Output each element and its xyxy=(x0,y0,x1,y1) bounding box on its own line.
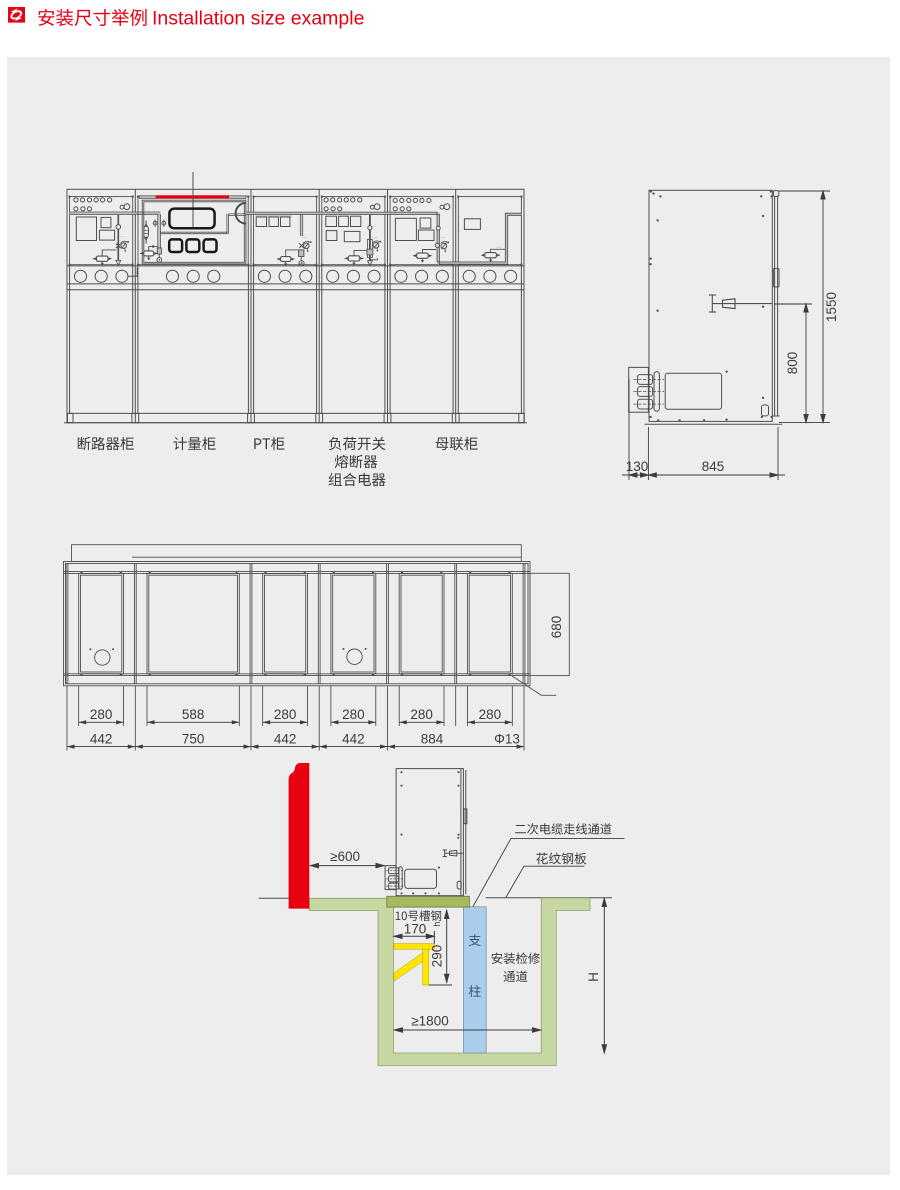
svg-text:280: 280 xyxy=(342,707,365,722)
svg-text:750: 750 xyxy=(182,731,205,746)
svg-text:680: 680 xyxy=(549,616,564,639)
svg-text:588: 588 xyxy=(182,707,205,722)
svg-text:280: 280 xyxy=(410,707,433,722)
svg-text:280: 280 xyxy=(274,707,297,722)
svg-text:1550: 1550 xyxy=(824,292,839,322)
svg-text:Installation size example: Installation size example xyxy=(152,8,364,30)
svg-text:800: 800 xyxy=(785,352,800,375)
svg-text:442: 442 xyxy=(274,731,297,746)
svg-text:280: 280 xyxy=(90,707,113,722)
svg-text:130: 130 xyxy=(626,459,649,474)
svg-text:442: 442 xyxy=(90,731,113,746)
svg-text:-- --: -- -- xyxy=(497,245,502,249)
svg-text:≥1800: ≥1800 xyxy=(411,1014,448,1029)
svg-text:290: 290 xyxy=(430,945,445,968)
svg-text:H: H xyxy=(586,972,601,982)
svg-text:442: 442 xyxy=(342,731,365,746)
svg-text:170: 170 xyxy=(404,922,427,937)
svg-text:≥600: ≥600 xyxy=(330,849,360,864)
svg-text:h: h xyxy=(432,921,442,926)
svg-text:845: 845 xyxy=(702,459,725,474)
svg-text:280: 280 xyxy=(479,707,502,722)
svg-text:-- --: -- -- xyxy=(302,236,307,240)
svg-text:-- --: -- -- xyxy=(373,235,378,239)
svg-text:-- --: -- -- xyxy=(120,234,125,238)
svg-text:Φ13: Φ13 xyxy=(494,731,520,746)
svg-text:884: 884 xyxy=(421,731,444,746)
svg-text:-- --: -- -- xyxy=(441,235,446,239)
